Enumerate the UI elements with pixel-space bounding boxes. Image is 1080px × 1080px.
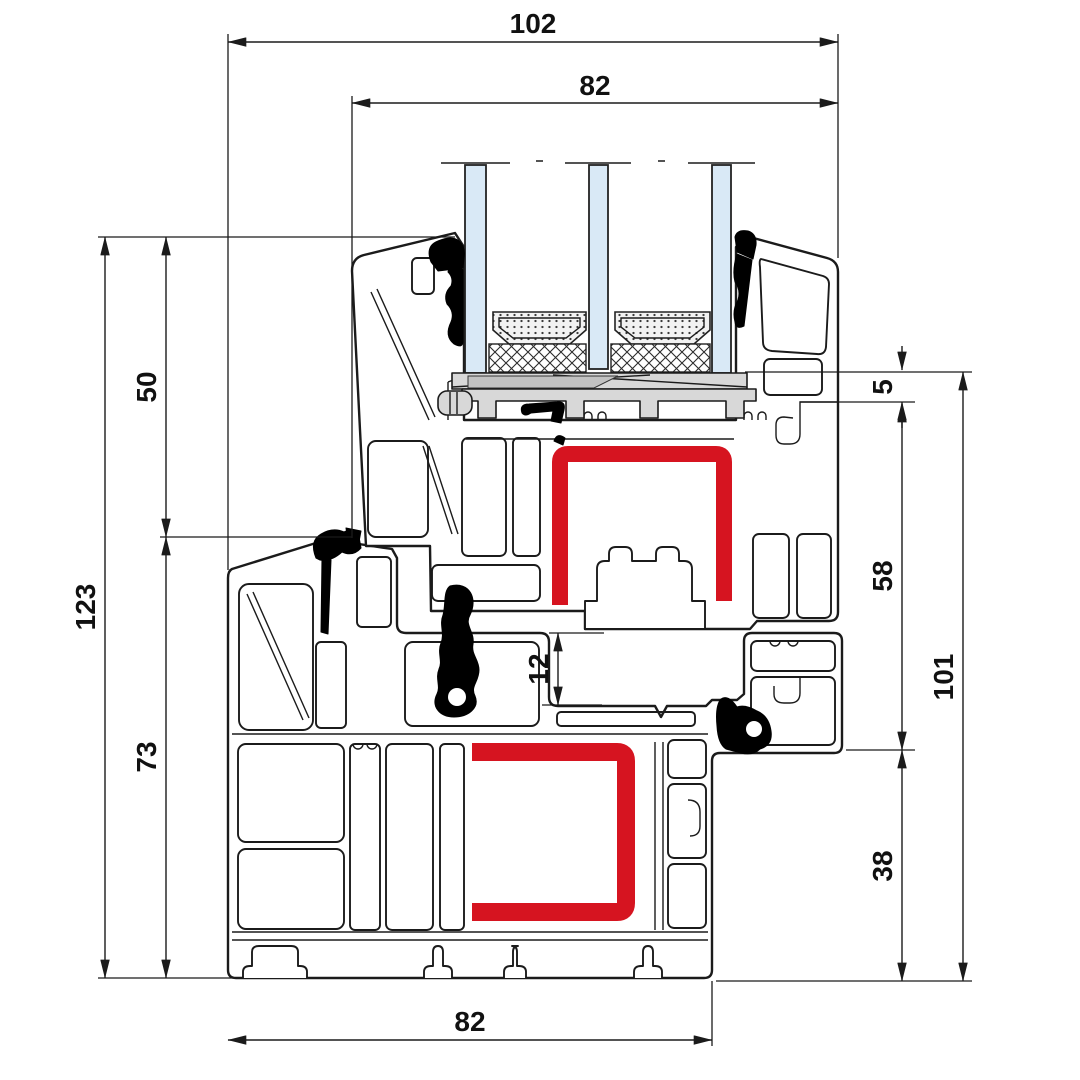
- spacer-bar-1: [493, 312, 586, 344]
- window-cross-section-page: 102 82 123 50 73 5 58 38 101 12 82: [0, 0, 1080, 1080]
- window-cross-section-drawing: 102 82 123 50 73 5 58 38 101 12 82: [0, 0, 1080, 1080]
- glazing-bridge-body: [462, 389, 756, 418]
- dim-label-right-sash: 58: [867, 560, 898, 591]
- glass-pane-2: [589, 165, 608, 369]
- glass-pane-1: [465, 165, 486, 373]
- dim-label-right-total: 101: [928, 654, 959, 701]
- packer-wedge: [468, 376, 618, 388]
- dim-label-right-lower: 38: [867, 850, 898, 881]
- glazing-block-hatch-2: [611, 344, 710, 372]
- dim-label-bottom-frame: 82: [454, 1006, 485, 1037]
- fixing-pin: [438, 391, 472, 415]
- dim-label-left-total: 123: [70, 584, 101, 631]
- dim-label-top-sash: 82: [579, 70, 610, 101]
- dim-label-right-overlap: 5: [867, 379, 898, 395]
- glass-pane-3: [712, 165, 731, 373]
- dim-label-left-upper: 50: [131, 371, 162, 402]
- spacer-bar-2: [615, 312, 710, 344]
- dim-label-top-overall: 102: [510, 8, 557, 39]
- glazing-unit: [441, 161, 755, 373]
- glazing-block-hatch-1: [489, 344, 586, 372]
- dim-label-mid-rebate: 12: [523, 653, 554, 684]
- glazing-bridge: [438, 373, 756, 423]
- dim-label-left-lower: 73: [131, 741, 162, 772]
